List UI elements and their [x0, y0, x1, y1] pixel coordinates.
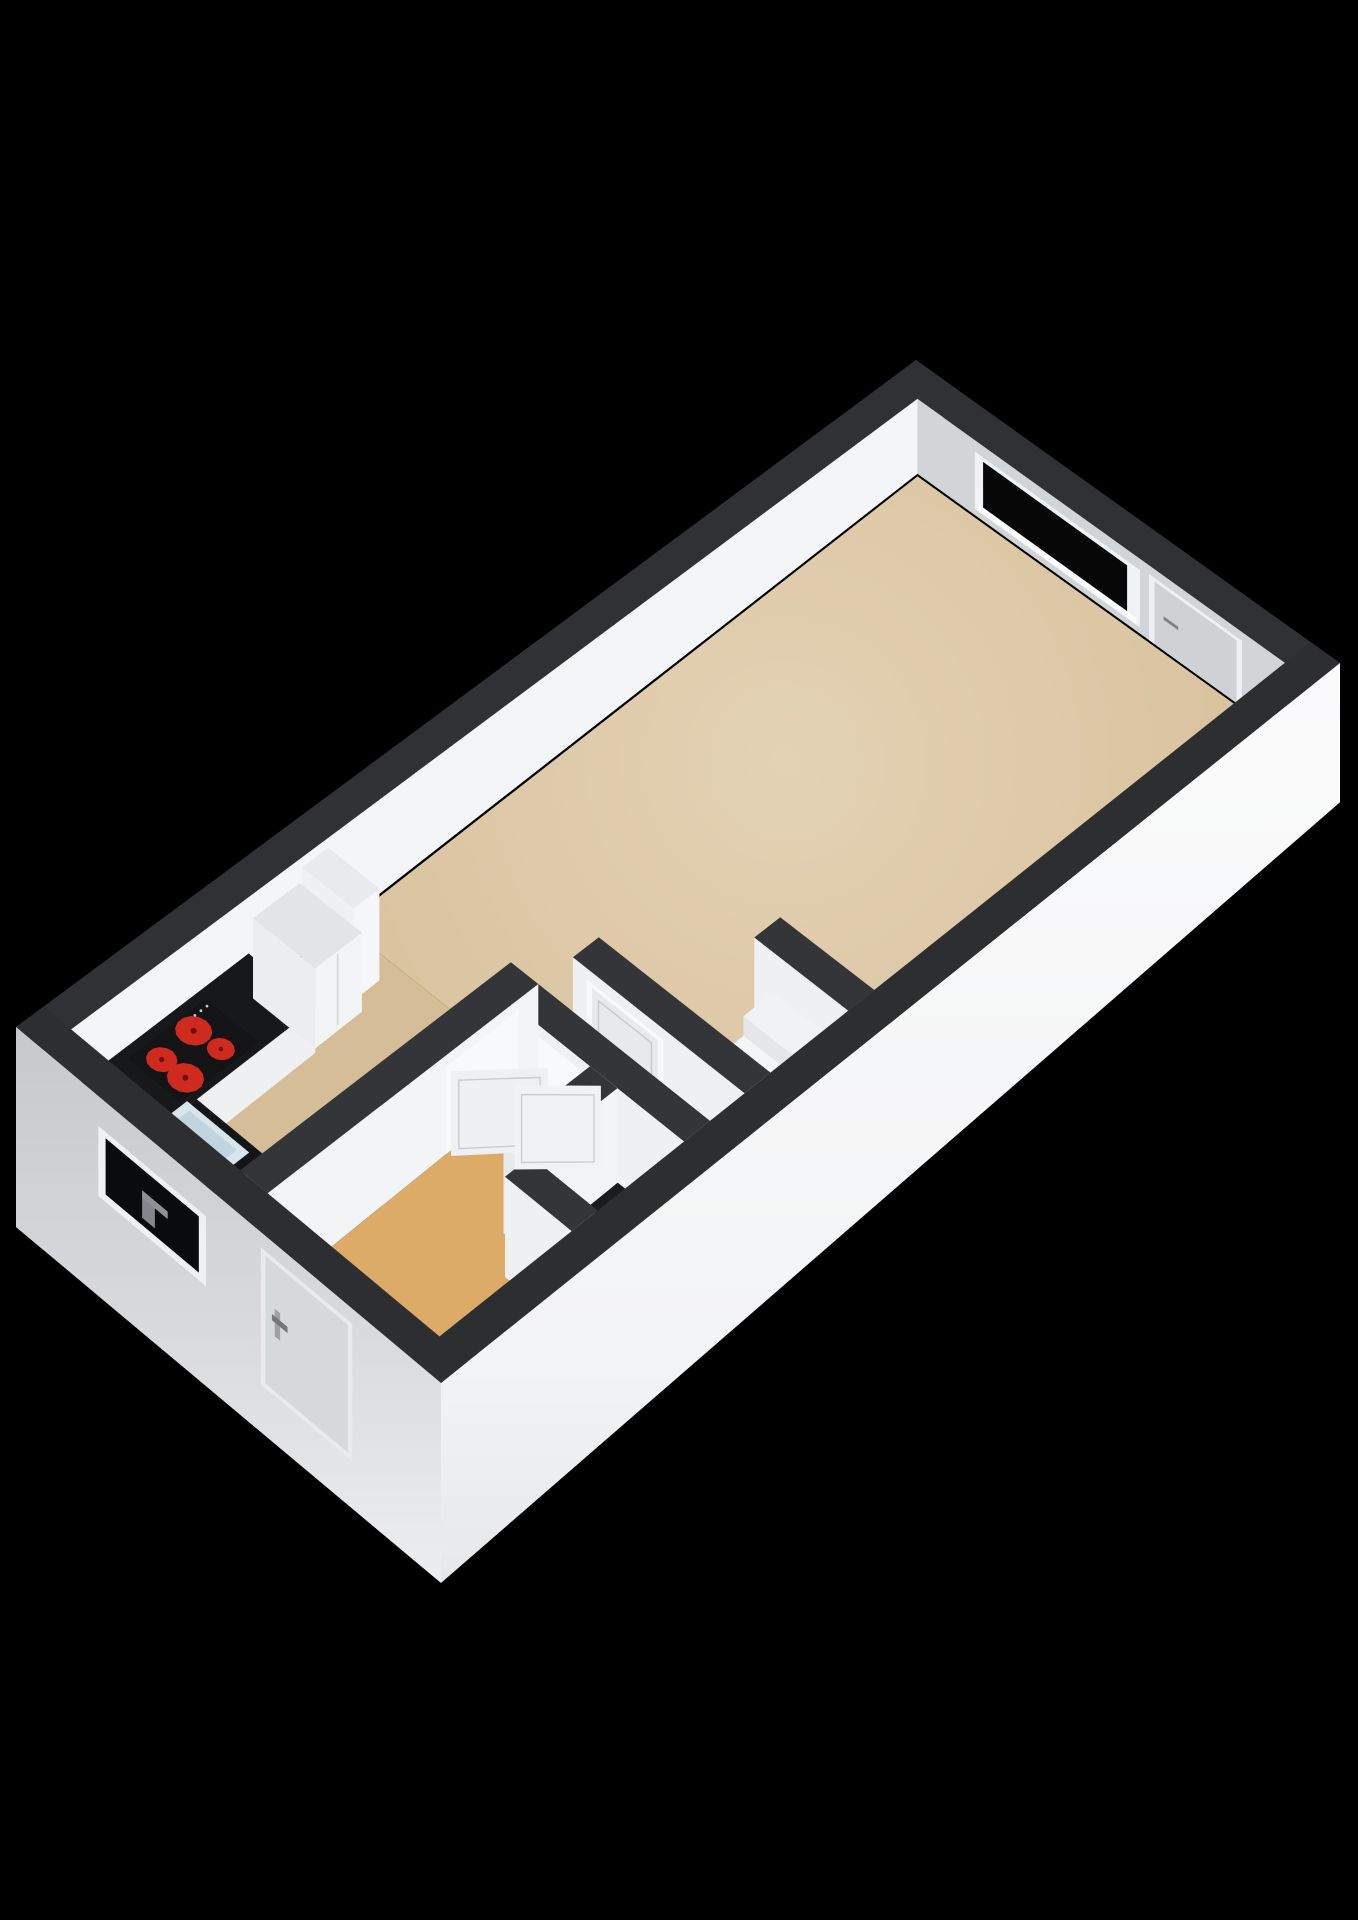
fridge-door-seam	[337, 953, 339, 1026]
floorplan-viewport: 3D isometric floor plan render of a stud…	[0, 0, 1358, 1920]
cooktop-knob-3	[206, 1005, 209, 1008]
burner-1-center	[159, 1057, 164, 1062]
burner-3-center	[191, 1028, 197, 1034]
cooktop-knob-2	[200, 1009, 203, 1012]
floorplan-3d-render	[0, 0, 1358, 1920]
cooktop-knob-1	[194, 1014, 197, 1017]
burner-2-center	[182, 1075, 188, 1081]
burner-4-center	[219, 1047, 224, 1052]
door2-panel-open	[515, 1085, 601, 1169]
